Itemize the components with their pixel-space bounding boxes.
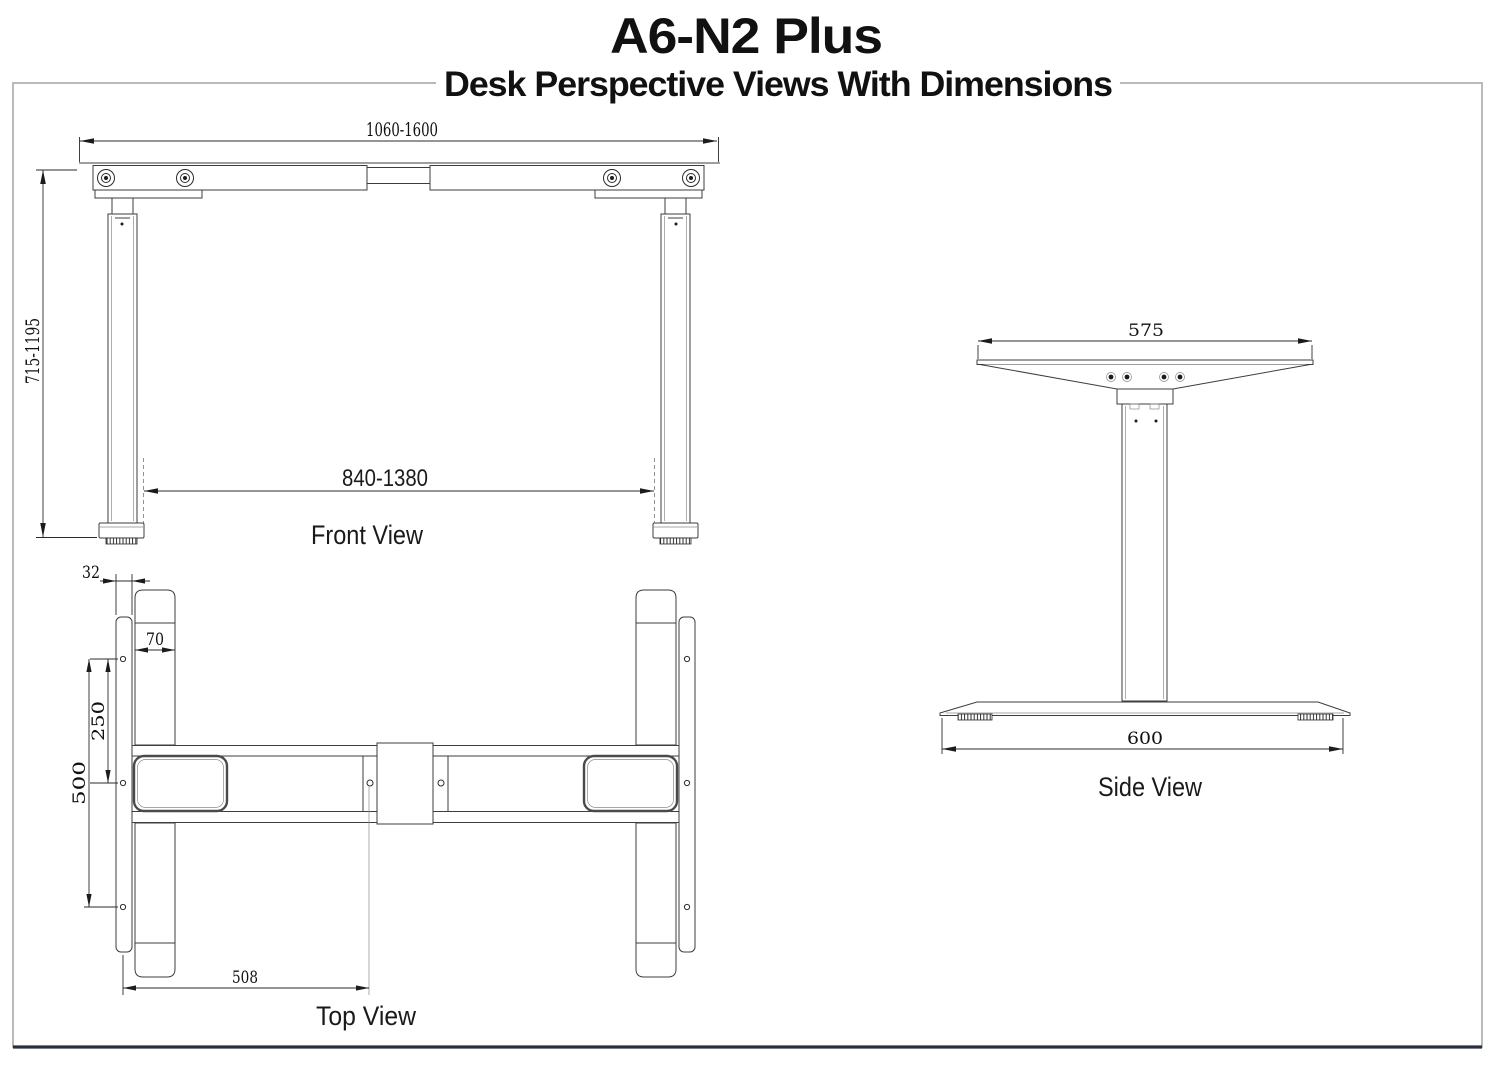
top-leg-pocket-left <box>134 756 227 811</box>
screw-icon <box>683 170 700 187</box>
drawing-sheet: A6-N2 Plus Desk Perspective Views With D… <box>0 0 1500 1083</box>
dim-text-foot-width: 70 <box>146 630 164 650</box>
front-beam-right <box>430 166 704 191</box>
foot-glide <box>660 538 691 544</box>
dim-text-hole-spacing-large: 500 <box>70 761 90 805</box>
screw-icon <box>177 170 194 187</box>
screw-icon <box>604 170 621 187</box>
side-column-collar <box>1117 389 1173 404</box>
top-bracket-right <box>679 617 695 952</box>
front-leg-right <box>653 198 698 544</box>
front-view-label: Front View <box>311 520 423 550</box>
side-view-label: Side View <box>1098 772 1202 802</box>
foot-glide <box>106 538 137 544</box>
foot-glide <box>958 714 992 720</box>
page-title: A6-N2 Plus <box>610 8 882 64</box>
top-beam-center-box <box>377 743 433 824</box>
side-desktop <box>977 360 1313 365</box>
border-box <box>13 83 1482 1047</box>
front-dim-width: 1060-1600 <box>80 119 719 162</box>
front-leg-left <box>99 198 144 544</box>
page-subtitle: Desk Perspective Views With Dimensions <box>444 65 1113 104</box>
dim-text-top-width: 575 <box>1128 321 1164 341</box>
side-dim-top-width: 575 <box>978 321 1312 359</box>
side-view: 575 600 Side View <box>940 321 1350 802</box>
dim-text-height-range: 715-1195 <box>22 318 44 384</box>
front-dim-height: 715-1195 <box>22 170 97 538</box>
side-dim-base-depth: 600 <box>942 718 1343 754</box>
top-view: 32 70 250 500 <box>70 563 695 1031</box>
dim-text-beam-offset: 508 <box>232 968 258 988</box>
dim-text-bracket-thickness: 32 <box>82 563 100 583</box>
dim-text-hole-spacing-small: 250 <box>89 701 109 741</box>
side-top-plate <box>980 365 1310 390</box>
top-view-label: Top View <box>316 1001 416 1031</box>
top-leg-pocket-right <box>584 756 677 811</box>
dim-text-leg-span: 840-1380 <box>342 465 428 492</box>
foot-glide <box>1298 714 1333 720</box>
front-bracket-left <box>95 190 202 198</box>
side-column <box>1122 404 1167 701</box>
front-beam-left <box>93 166 367 191</box>
screw-icon <box>98 170 115 187</box>
top-dim-250: 250 <box>89 659 118 783</box>
side-base <box>940 702 1350 716</box>
front-beam-connector <box>367 168 430 184</box>
front-bracket-right <box>595 190 702 198</box>
front-view: 1060-1600 715-1195 840-1380 Front View <box>22 119 720 550</box>
dim-text-width-range: 1060-1600 <box>366 119 438 141</box>
top-bracket-left <box>116 617 132 952</box>
front-dim-leg-span: 840-1380 <box>144 458 655 523</box>
sheet-border <box>13 64 1482 1047</box>
dim-text-base-depth: 600 <box>1127 729 1163 749</box>
